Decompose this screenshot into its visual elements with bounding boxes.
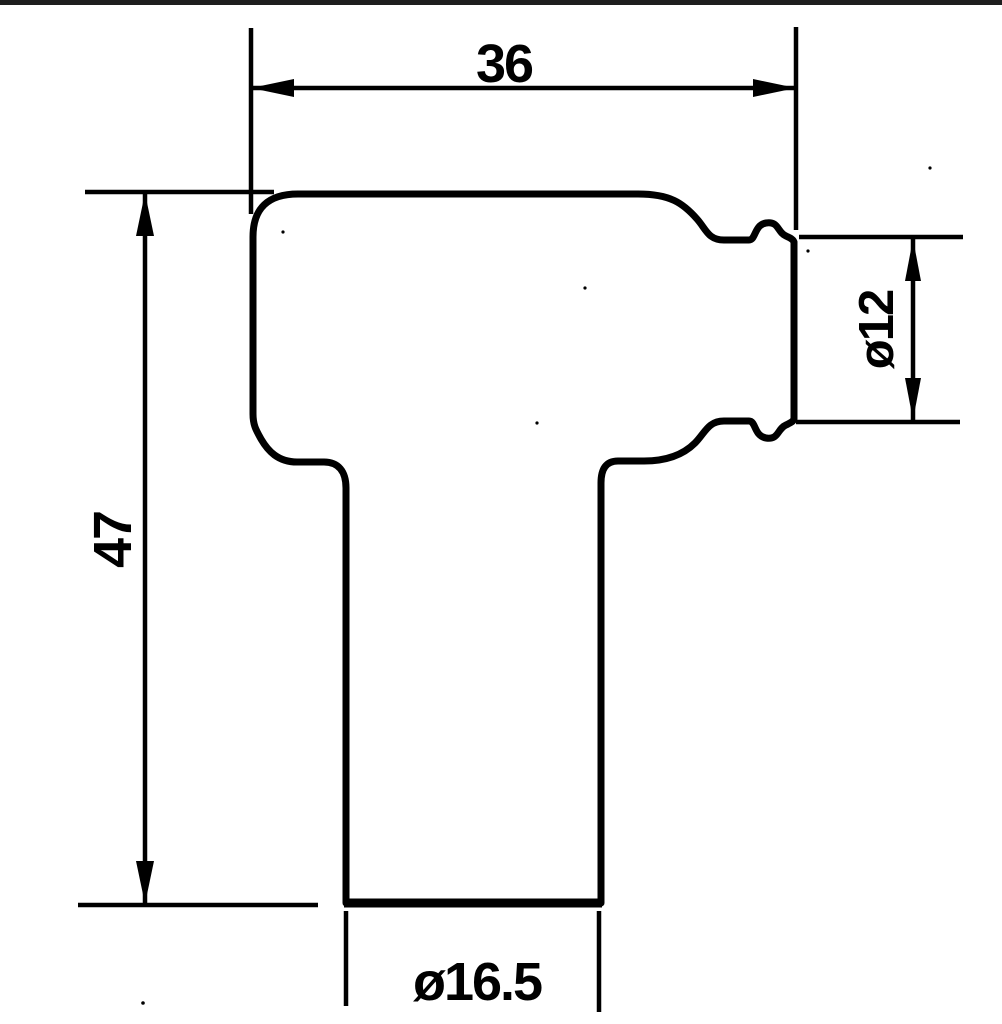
arrowhead-top [136, 193, 154, 236]
dimension-top-width: 36 [251, 27, 796, 230]
arrowhead-bottom [905, 378, 921, 420]
top-border-bar [0, 0, 1002, 5]
dim-label-right-diameter: ø12 [850, 290, 904, 369]
dimension-right-diameter: ø12 [796, 237, 963, 422]
cap-outline [253, 194, 794, 903]
arrowhead-top [905, 239, 921, 281]
dim-label-left-height: 47 [83, 512, 143, 568]
technical-drawing-page: 36 47 ø12 ø16.5 [0, 0, 1002, 1024]
arrowhead-right [753, 79, 796, 97]
dim-label-top-width: 36 [476, 34, 533, 94]
scan-specks [141, 166, 931, 1004]
spark-plug-cap-drawing: 36 47 ø12 ø16.5 [0, 0, 1002, 1024]
dimension-bottom-diameter: ø16.5 [346, 911, 599, 1012]
arrowhead-left [251, 79, 294, 97]
arrowhead-bottom [136, 861, 154, 904]
dimension-left-height: 47 [78, 192, 318, 905]
dim-label-bottom-diameter: ø16.5 [413, 952, 542, 1012]
